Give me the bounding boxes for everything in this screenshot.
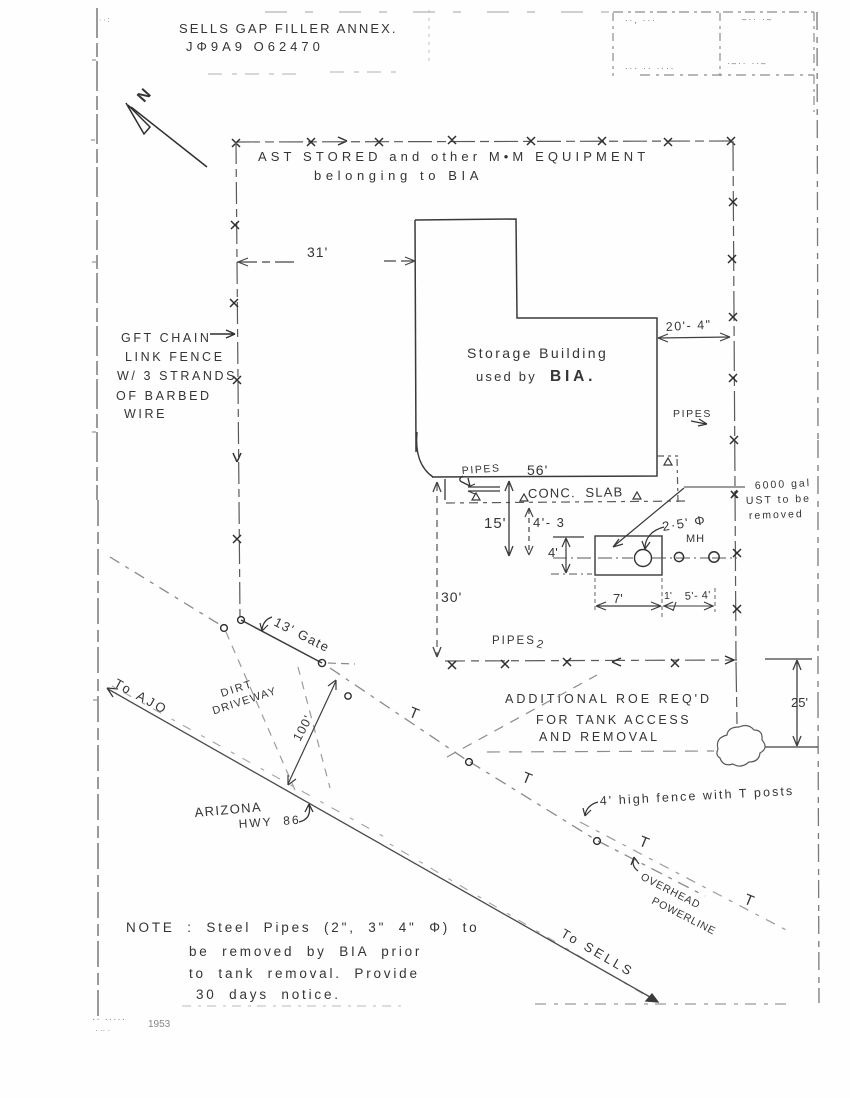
svg-text:Storage Building: Storage Building xyxy=(467,345,608,361)
svg-text:LINK FENCE: LINK FENCE xyxy=(125,350,225,364)
svg-text:30': 30' xyxy=(441,589,462,605)
svg-text:· ·· ·: · ·· · xyxy=(95,1026,110,1035)
svg-text:GFT CHAIN: GFT CHAIN xyxy=(121,331,212,345)
svg-text:AST STORED and other M•M EQUIP: AST STORED and other M•M EQUIPMENT xyxy=(258,149,649,164)
svg-text:W/ 3 STRANDS: W/ 3 STRANDS xyxy=(117,369,237,383)
svg-text:15': 15' xyxy=(484,515,507,532)
svg-text:removed: removed xyxy=(749,508,804,522)
svg-text:··:: ··: xyxy=(99,17,112,24)
svg-text:20'- 4": 20'- 4" xyxy=(665,318,711,334)
svg-text:CONC. SLAB: CONC. SLAB xyxy=(528,484,624,501)
svg-text:1': 1' xyxy=(664,590,672,602)
svg-text:7': 7' xyxy=(613,591,623,606)
svg-text:to tank removal. Provide: to tank removal. Provide xyxy=(189,966,420,981)
svg-text:OF BARBED: OF BARBED xyxy=(116,389,212,403)
svg-text:30 days notice.: 30 days notice. xyxy=(196,987,341,1002)
svg-text:‒·· ·‒: ‒·· ·‒ xyxy=(742,15,773,24)
svg-text:4'- 3: 4'- 3 xyxy=(533,515,565,530)
svg-text:JΦ9A9 O62470: JΦ9A9 O62470 xyxy=(186,39,324,54)
svg-text:PIPES: PIPES xyxy=(492,635,536,647)
svg-text:BIA.: BIA. xyxy=(550,368,596,385)
svg-text:25': 25' xyxy=(791,695,808,710)
svg-text:·‒·· ··‒: ·‒·· ··‒ xyxy=(727,59,767,68)
svg-text:31': 31' xyxy=(307,244,328,260)
svg-text:UST to be: UST to be xyxy=(746,493,811,507)
svg-text:PIPES: PIPES xyxy=(673,408,712,420)
svg-text:5'- 4': 5'- 4' xyxy=(685,589,712,602)
svg-text:56': 56' xyxy=(527,462,548,478)
svg-text:WIRE: WIRE xyxy=(124,407,167,421)
svg-text:ADDITIONAL ROE REQ'D: ADDITIONAL ROE REQ'D xyxy=(505,692,712,706)
svg-text:AND REMOVAL: AND REMOVAL xyxy=(539,730,660,744)
svg-text:·· ·····: ·· ····· xyxy=(92,1014,126,1025)
svg-text:MH: MH xyxy=(686,533,705,545)
svg-text:used by: used by xyxy=(476,369,537,384)
svg-text:belonging to BIA: belonging to BIA xyxy=(314,168,483,183)
svg-text:1953: 1953 xyxy=(148,1019,171,1030)
svg-text:be removed by BIA prior: be removed by BIA prior xyxy=(189,944,422,959)
svg-text:··· ·· ····: ··· ·· ···· xyxy=(625,64,675,73)
svg-text:SELLS GAP FILLER ANNEX.: SELLS GAP FILLER ANNEX. xyxy=(179,21,398,36)
svg-text:NOTE : Steel Pipes (2", 3" 4": NOTE : Steel Pipes (2", 3" 4" Φ) to xyxy=(126,920,479,935)
svg-text:··, ···: ··, ··· xyxy=(625,16,657,25)
svg-text:FOR TANK ACCESS: FOR TANK ACCESS xyxy=(536,713,691,727)
